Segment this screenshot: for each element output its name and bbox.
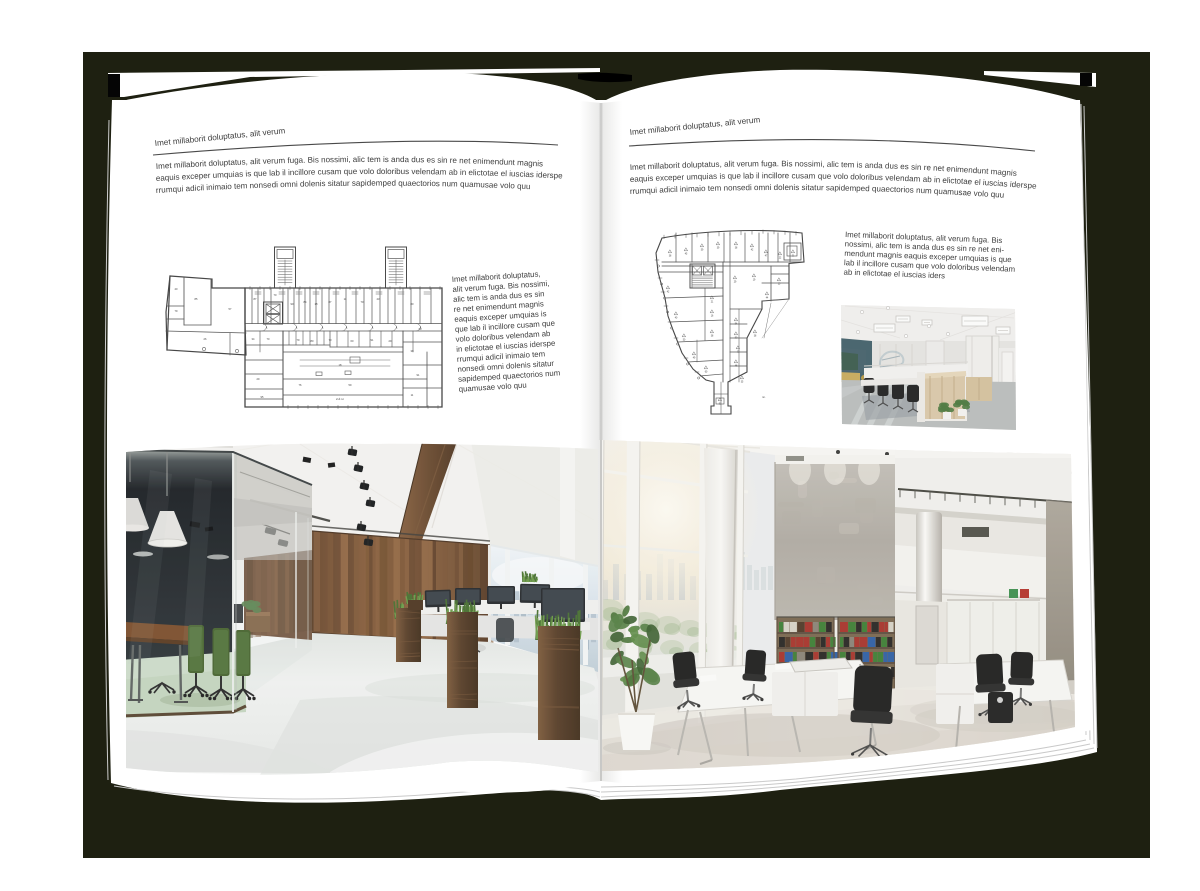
svg-text:пл.: пл. (762, 396, 766, 399)
svg-text:2-й эт: 2-й эт (336, 397, 345, 401)
